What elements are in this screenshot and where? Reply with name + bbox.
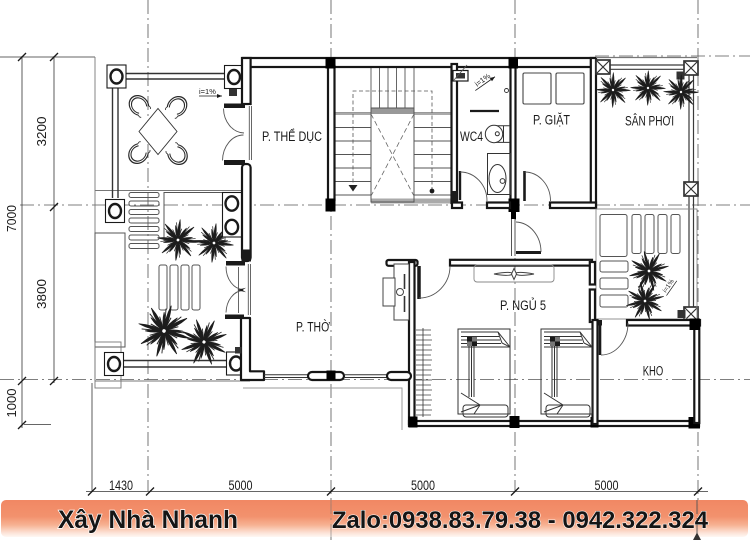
svg-text:P. NGỦ 5: P. NGỦ 5 [500,298,546,313]
svg-text:3800: 3800 [35,279,49,309]
svg-text:WC4: WC4 [460,129,483,144]
svg-text:SÂN PHƠI: SÂN PHƠI [625,114,674,129]
svg-text:KHO: KHO [643,364,664,379]
svg-text:Xây Nhà Nhanh: Xây Nhà Nhanh [58,506,238,534]
svg-text:P. THỂ DỤC: P. THỂ DỤC [262,129,322,144]
svg-text:5000: 5000 [411,477,435,493]
svg-text:i=1%: i=1% [199,87,216,96]
svg-text:3200: 3200 [35,116,49,146]
svg-text:7000: 7000 [5,205,19,232]
svg-text:P. GIẶT: P. GIẶT [533,113,570,128]
svg-text:P. THỜ: P. THỜ [296,320,330,335]
svg-text:5000: 5000 [229,477,253,493]
svg-text:Zalo:0938.83.79.38 - 0942.322.: Zalo:0938.83.79.38 - 0942.322.324 [332,507,709,534]
svg-text:1000: 1000 [5,388,19,417]
svg-text:5000: 5000 [595,477,619,493]
svg-text:1430: 1430 [109,477,133,493]
